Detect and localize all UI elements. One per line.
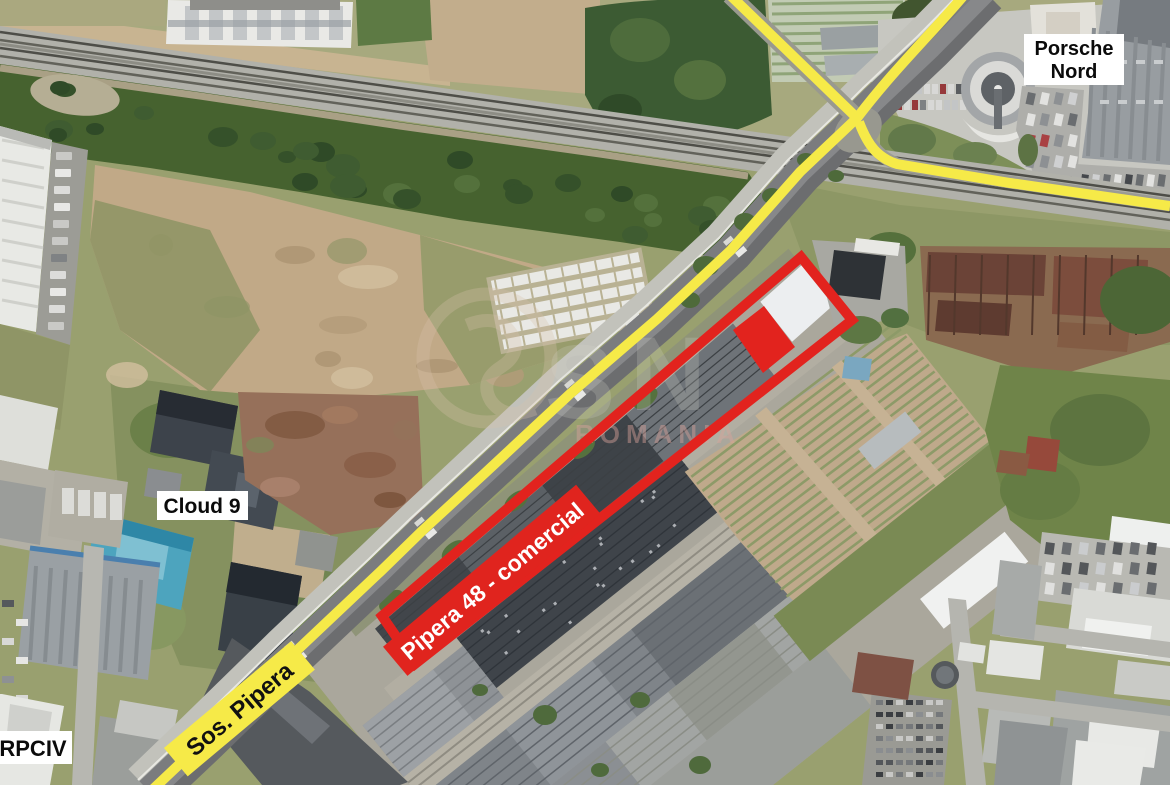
svg-text:RPCIV: RPCIV xyxy=(0,736,67,761)
svg-text:Porsche: Porsche xyxy=(1035,38,1114,60)
svg-text:Cloud 9: Cloud 9 xyxy=(164,495,241,518)
svg-text:Nord: Nord xyxy=(1051,61,1098,83)
